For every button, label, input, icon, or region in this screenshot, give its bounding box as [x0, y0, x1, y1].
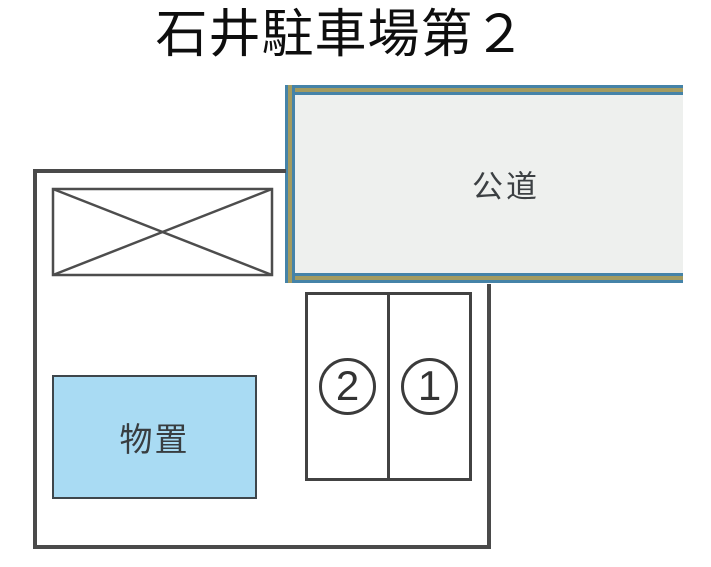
parking-stall-2: 2	[308, 295, 390, 478]
stall-1-number: 1	[418, 365, 441, 407]
storage-shed: 物置	[52, 375, 257, 499]
parking-stalls: 2 1	[305, 292, 472, 481]
stall-2-number: 2	[336, 365, 359, 407]
parking-stall-1: 1	[390, 295, 469, 478]
storage-shed-label: 物置	[120, 413, 190, 461]
stall-2-number-badge: 2	[319, 358, 376, 415]
crossed-out-box	[53, 189, 272, 275]
parking-lot-diagram: 石井駐車場第２ 公道 物置 2 1	[0, 0, 711, 567]
stall-1-number-badge: 1	[401, 358, 458, 415]
